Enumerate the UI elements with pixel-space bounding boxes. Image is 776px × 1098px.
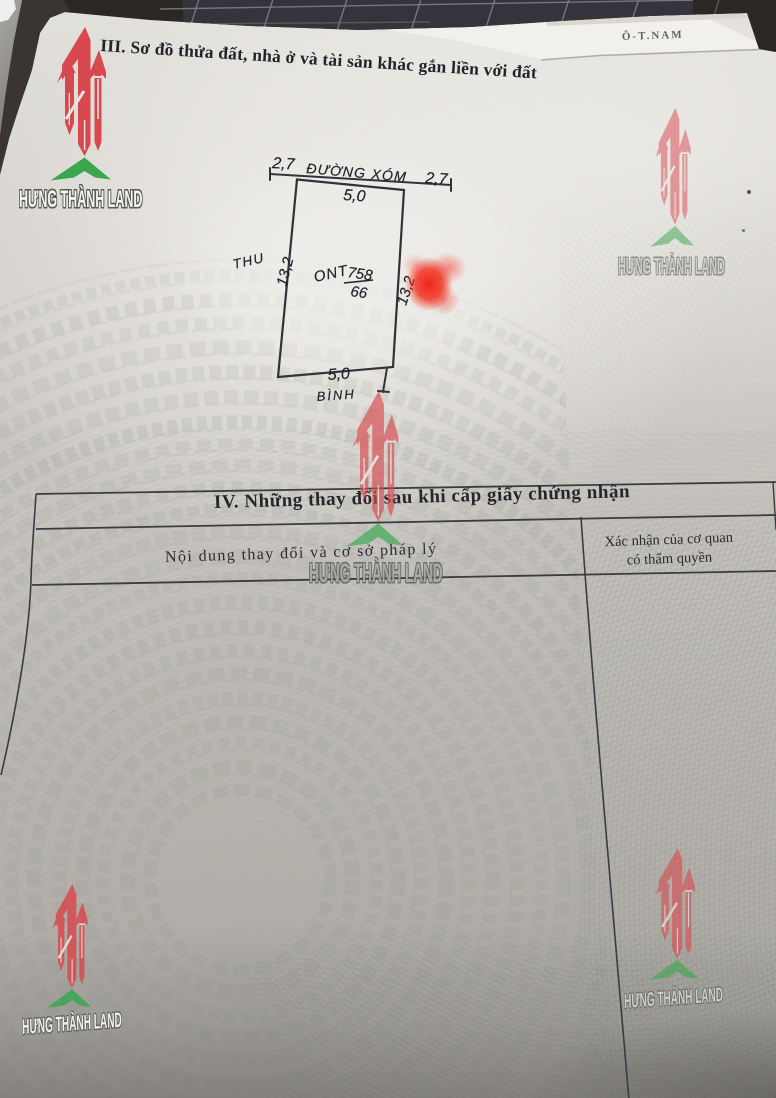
svg-text:THU: THU (231, 250, 266, 272)
svg-text:2,7: 2,7 (424, 170, 449, 189)
svg-text:2,7: 2,7 (271, 155, 296, 174)
svg-text:Ô-T.NAM: Ô-T.NAM (622, 28, 684, 43)
svg-text:66: 66 (349, 283, 369, 302)
svg-text:5,0: 5,0 (327, 365, 350, 384)
svg-text:5,0: 5,0 (343, 187, 366, 206)
svg-text:13,2: 13,2 (273, 255, 297, 288)
